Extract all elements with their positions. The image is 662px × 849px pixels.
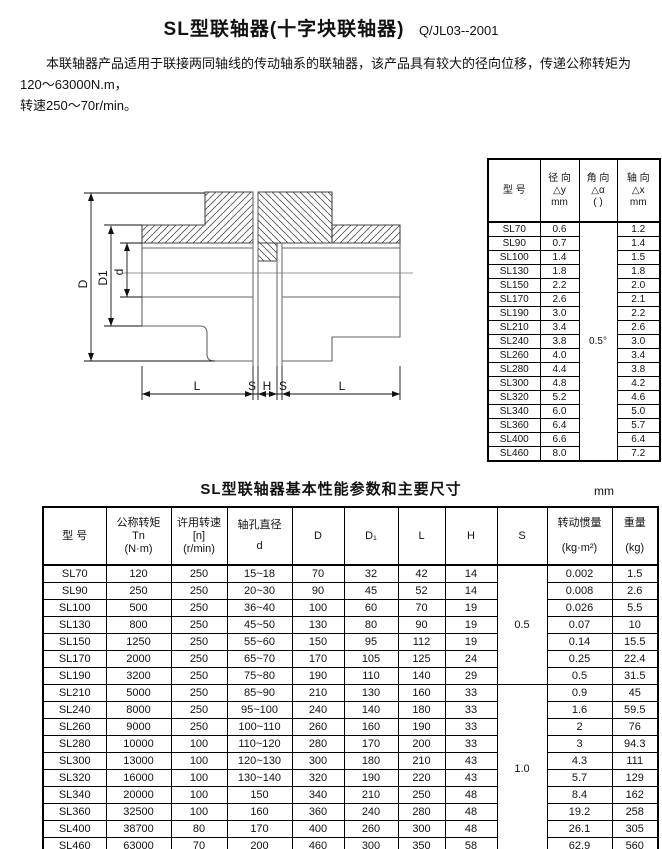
standard-code: Q/JL03--2001 [419,23,499,38]
header-line: (r/min) [172,543,227,556]
cell: 105 [344,651,398,668]
cell: 150 [227,787,292,804]
cell: 6.4 [617,433,660,447]
col-header-H: H [445,507,497,565]
cell: 2000 [106,651,171,668]
header-line: 轴 向 [618,173,660,185]
table-row: SL1903.02.2 [488,307,660,321]
cell: 305 [612,821,658,838]
cell: 55~60 [227,634,292,651]
cell: 110 [344,668,398,685]
cell: 0.008 [547,583,612,600]
cell: 190 [344,770,398,787]
cell: 100~110 [227,719,292,736]
cell: 360 [292,804,344,821]
table-row: SL4006.66.4 [488,433,660,447]
cell: 110~120 [227,736,292,753]
cell: 80 [344,617,398,634]
cell: SL280 [43,736,106,753]
table-row: SL34020000100150340210250488.4162 [43,787,658,804]
cell: 280 [292,736,344,753]
cell: 10 [612,617,658,634]
table-row: SL10050025036~401006070190.0265.5 [43,600,658,617]
cell: 1.0 [497,685,547,849]
col-header-inertia: 转动惯量 (kg·m²) [547,507,612,565]
header-line: 轴孔直径 [228,519,292,532]
cell: SL190 [488,307,540,321]
cell: 258 [612,804,658,821]
cell: 350 [398,838,445,849]
cell: SL400 [43,821,106,838]
table-row: SL190320025075~80190110140290.531.5 [43,668,658,685]
cell: 94.3 [612,736,658,753]
table-row: SL3004.84.2 [488,377,660,391]
intro-line-2: 转速250～70r/min。 [20,95,648,116]
table-row: SL360325001001603602402804819.2258 [43,804,658,821]
header-line: 径 向 [541,173,579,185]
dim-label-L-right: L [339,379,346,393]
cell: 400 [292,821,344,838]
table-row: SL30013000100120~130300180210434.3111 [43,753,658,770]
cell: 7.2 [617,447,660,462]
cell: 160 [227,804,292,821]
page: SL型联轴器(十字块联轴器) Q/JL03--2001 本联轴器产品适用于联接两… [0,0,662,849]
cell: 5000 [106,685,171,702]
cell: 19 [445,634,497,651]
intro-line-1: 本联轴器产品适用于联接两同轴线的传动轴系的联轴器，该产品具有较大的径向位移，传递… [20,53,648,95]
cell: 1.4 [617,237,660,251]
cell: 5.0 [617,405,660,419]
header-line: △α [580,185,617,197]
cell: 130 [344,685,398,702]
header-line: (kg) [613,542,658,555]
cell: 20~30 [227,583,292,600]
misalignment-table: 型 号 径 向 △y mm 角 向 △α ( ) 轴 向 △x mm SL700… [487,158,661,462]
cell: 19 [445,617,497,634]
cell: 0.07 [547,617,612,634]
cell: 100 [171,787,227,804]
table-row: SL2403.83.0 [488,335,660,349]
cell: 190 [398,719,445,736]
cell: SL360 [43,804,106,821]
header-line: (N·m) [107,543,171,556]
cell: 250 [171,685,227,702]
cell: 1.8 [540,265,579,279]
cell: 9000 [106,719,171,736]
cell: SL210 [43,685,106,702]
table-row: SL1301.81.8 [488,265,660,279]
cell: 0.7 [540,237,579,251]
cell: 45 [612,685,658,702]
dim-label-L-left: L [194,379,201,393]
cell: 0.5 [547,668,612,685]
table-row: SL46063000702004603003505862.9560 [43,838,658,849]
cell: 140 [344,702,398,719]
cell: 14 [445,565,497,583]
cell: 15.5 [612,634,658,651]
cell: SL240 [488,335,540,349]
col-header-bore: 轴孔直径 d [227,507,292,565]
cell: 100 [171,770,227,787]
cell: 0.002 [547,565,612,583]
cell: 45 [344,583,398,600]
cell: 65~70 [227,651,292,668]
cell: 0.5° [579,222,617,461]
coupling-section-drawing: D D1 d L S H S L [55,150,485,470]
cell: 15~18 [227,565,292,583]
spec-table: 型 号 公称转矩 Tn (N·m) 许用转速 [n] (r/min) 轴孔直径 … [42,506,659,849]
cell: 250 [171,634,227,651]
table-row: SL4608.07.2 [488,447,660,462]
cell: 0.026 [547,600,612,617]
cell: SL130 [43,617,106,634]
cell: 170 [227,821,292,838]
table-row: SL2604.03.4 [488,349,660,363]
col-header-model: 型 号 [43,507,106,565]
spec-table-unit: mm [594,484,614,498]
dim-label-H: H [263,379,272,393]
table-row: SL1502.22.0 [488,279,660,293]
cell: 4.3 [547,753,612,770]
left-hub-hatched [142,192,253,243]
cell: 4.4 [540,363,579,377]
col-header-L: L [398,507,445,565]
cell: 1.6 [547,702,612,719]
cell: 76 [612,719,658,736]
cell: 8000 [106,702,171,719]
cell: SL190 [43,668,106,685]
cell: 2.6 [617,321,660,335]
cell: 5.5 [612,600,658,617]
table-row: SL240800025095~100240140180331.659.5 [43,702,658,719]
cell: 52 [398,583,445,600]
cell: 75~80 [227,668,292,685]
doc-title: SL型联轴器(十字块联轴器) Q/JL03--2001 [0,14,662,41]
cell: 43 [445,770,497,787]
cell: 4.8 [540,377,579,391]
cell: 70 [292,565,344,583]
cell: 3 [547,736,612,753]
cell: 180 [344,753,398,770]
header-line: (kg·m²) [548,542,612,555]
cell: 48 [445,804,497,821]
cell: 90 [292,583,344,600]
cell: SL240 [43,702,106,719]
cell: 90 [398,617,445,634]
cross-block-stem-hatched [258,243,277,261]
cell: 32500 [106,804,171,821]
cell: 300 [344,838,398,849]
cell: SL320 [488,391,540,405]
cell: 300 [398,821,445,838]
header-line: [n] [172,530,227,543]
cell: 170 [344,736,398,753]
cell: SL260 [488,349,540,363]
cell: 33 [445,685,497,702]
table-row: SL1702.62.1 [488,293,660,307]
cell: 24 [445,651,497,668]
header-line: 转动惯量 [548,517,612,530]
cell: 33 [445,736,497,753]
header-line: 角 向 [580,173,617,185]
cell: 6.4 [540,419,579,433]
cell: 500 [106,600,171,617]
cell: SL150 [43,634,106,651]
cell: 2.1 [617,293,660,307]
cell: SL90 [43,583,106,600]
cell: 48 [445,821,497,838]
cell: 22.4 [612,651,658,668]
cell: 1.5 [612,565,658,583]
table-row: SL3205.24.6 [488,391,660,405]
cell: 200 [227,838,292,849]
header-row: 型 号 公称转矩 Tn (N·m) 许用转速 [n] (r/min) 轴孔直径 … [43,507,658,565]
cell: 1.2 [617,222,660,237]
cell: SL130 [488,265,540,279]
cell: SL260 [43,719,106,736]
cell: 250 [171,702,227,719]
cell: 31.5 [612,668,658,685]
cell: 250 [171,565,227,583]
cell: 250 [398,787,445,804]
cell: 5.7 [547,770,612,787]
cell: 340 [292,787,344,804]
cell: 10000 [106,736,171,753]
table-row: SL2804.43.8 [488,363,660,377]
cross-block-hatched [258,192,332,243]
cell: 38700 [106,821,171,838]
cell: 0.6 [540,222,579,237]
dim-label-d: d [112,269,126,276]
cell: 160 [344,719,398,736]
cell: 160 [398,685,445,702]
cell: 1.8 [617,265,660,279]
cell: SL170 [43,651,106,668]
cell: SL300 [43,753,106,770]
col-header-weight: 重量 (kg) [612,507,658,565]
table-row: SL13080025045~501308090190.0710 [43,617,658,634]
cell: 62.9 [547,838,612,849]
col-header-speed: 许用转速 [n] (r/min) [171,507,227,565]
header-line: △y [541,185,579,197]
header-line: 许用转速 [172,517,227,530]
cell: 100 [171,736,227,753]
header-line: △x [618,185,660,197]
cell: 130~140 [227,770,292,787]
cell: 60 [344,600,398,617]
col-header-D1: D₁ [344,507,398,565]
cell: 4.2 [617,377,660,391]
cell: SL340 [43,787,106,804]
table-row: SL2609000250100~11026016019033276 [43,719,658,736]
cell: 95 [344,634,398,651]
col-header-radial: 径 向 △y mm [540,159,579,222]
cell: 3.8 [617,363,660,377]
dim-label-S-right: S [279,379,287,393]
col-header-torque: 公称转矩 Tn (N·m) [106,507,171,565]
cell: 95~100 [227,702,292,719]
table-row: SL150125025055~6015095112190.1415.5 [43,634,658,651]
cell: 280 [398,804,445,821]
cell: 200 [398,736,445,753]
col-header-axial: 轴 向 △x mm [617,159,660,222]
cell: 560 [612,838,658,849]
cell: 32 [344,565,398,583]
cell: 162 [612,787,658,804]
cell: 85~90 [227,685,292,702]
cell: SL400 [488,433,540,447]
header-line: 公称转矩 [107,517,171,530]
cell: 112 [398,634,445,651]
cell: 250 [171,600,227,617]
header-line: 重量 [613,517,658,530]
col-header-model: 型 号 [488,159,540,222]
cell: 2 [547,719,612,736]
table-row: SL28010000100110~12028017020033394.3 [43,736,658,753]
cell: 3.0 [540,307,579,321]
cell: 240 [344,804,398,821]
cell: 70 [171,838,227,849]
cell: 0.5 [497,565,547,685]
cell: 26.1 [547,821,612,838]
cell: 8.0 [540,447,579,462]
cell: 150 [292,634,344,651]
cell: 3.4 [617,349,660,363]
cell: SL300 [488,377,540,391]
cell: 19 [445,600,497,617]
dim-label-D: D [76,279,90,288]
cell: 180 [398,702,445,719]
cell: 58 [445,838,497,849]
col-header-S: S [497,507,547,565]
cell: 250 [171,651,227,668]
cell: 3.4 [540,321,579,335]
cell: 125 [398,651,445,668]
cell: 140 [398,668,445,685]
cell: 20000 [106,787,171,804]
cell: 70 [398,600,445,617]
cell: 80 [171,821,227,838]
cell: 250 [106,583,171,600]
cell: 111 [612,753,658,770]
cell: 3200 [106,668,171,685]
cell: 3.8 [540,335,579,349]
header-line: ( ) [580,197,617,209]
cell: 250 [171,583,227,600]
dim-label-D1: D1 [96,270,110,286]
cell: SL70 [43,565,106,583]
dim-label-S-left: S [248,379,256,393]
cell: 210 [344,787,398,804]
cell: SL280 [488,363,540,377]
table-row: SL2103.42.6 [488,321,660,335]
header-row: 型 号 径 向 △y mm 角 向 △α ( ) 轴 向 △x mm [488,159,660,222]
cell: SL360 [488,419,540,433]
cell: 8.4 [547,787,612,804]
cell: 210 [292,685,344,702]
cell: 250 [171,617,227,634]
cell: SL340 [488,405,540,419]
cell: 4.0 [540,349,579,363]
table-row: SL210500025085~90210130160331.00.945 [43,685,658,702]
table-row: SL900.71.4 [488,237,660,251]
table-row: SL32016000100130~140320190220435.7129 [43,770,658,787]
cell: 45~50 [227,617,292,634]
cell: 0.14 [547,634,612,651]
cell: 100 [292,600,344,617]
header-line: Tn [107,530,171,543]
cell: 1.5 [617,251,660,265]
cell: SL100 [488,251,540,265]
page-title: SL型联轴器(十字块联轴器) [164,19,405,40]
header-line: mm [541,197,579,209]
cell: 0.25 [547,651,612,668]
cell: 130 [292,617,344,634]
table-row: SL170200025065~70170105125240.2522.4 [43,651,658,668]
cell: 120 [106,565,171,583]
cell: SL210 [488,321,540,335]
cell: 250 [171,719,227,736]
cell: 2.2 [617,307,660,321]
cell: 63000 [106,838,171,849]
header-line: mm [618,197,660,209]
cell: 6.6 [540,433,579,447]
cell: 100 [171,804,227,821]
table-row: SL1001.41.5 [488,251,660,265]
cell: 6.0 [540,405,579,419]
cell: SL170 [488,293,540,307]
cell: 48 [445,787,497,804]
cell: 1250 [106,634,171,651]
cell: 0.9 [547,685,612,702]
cell: 170 [292,651,344,668]
cell: 36~40 [227,600,292,617]
right-flange-hatched [332,225,400,243]
header-line: d [228,540,292,553]
cell: 59.5 [612,702,658,719]
cell: 33 [445,719,497,736]
cell: 220 [398,770,445,787]
cell: 129 [612,770,658,787]
table-row: SL40038700801704002603004826.1305 [43,821,658,838]
cell: 29 [445,668,497,685]
table-row: SL7012025015~18703242140.50.0021.5 [43,565,658,583]
intro-paragraph: 本联轴器产品适用于联接两同轴线的传动轴系的联轴器，该产品具有较大的径向位移，传递… [20,53,648,116]
cell: SL460 [488,447,540,462]
cell: 2.6 [540,293,579,307]
cell: 2.0 [617,279,660,293]
cell: 13000 [106,753,171,770]
cell: 2.6 [612,583,658,600]
cell: 4.6 [617,391,660,405]
cell: 3.0 [617,335,660,349]
cell: 250 [171,668,227,685]
cell: 260 [344,821,398,838]
table-row: SL3406.05.0 [488,405,660,419]
table-row: SL3606.45.7 [488,419,660,433]
cell: 33 [445,702,497,719]
cell: 800 [106,617,171,634]
cell: 190 [292,668,344,685]
table-row: SL700.60.5°1.2 [488,222,660,237]
cell: 5.7 [617,419,660,433]
cell: 100 [171,753,227,770]
cell: SL150 [488,279,540,293]
table-row: SL9025025020~30904552140.0082.6 [43,583,658,600]
cell: SL320 [43,770,106,787]
cell: 1.4 [540,251,579,265]
cell: 320 [292,770,344,787]
